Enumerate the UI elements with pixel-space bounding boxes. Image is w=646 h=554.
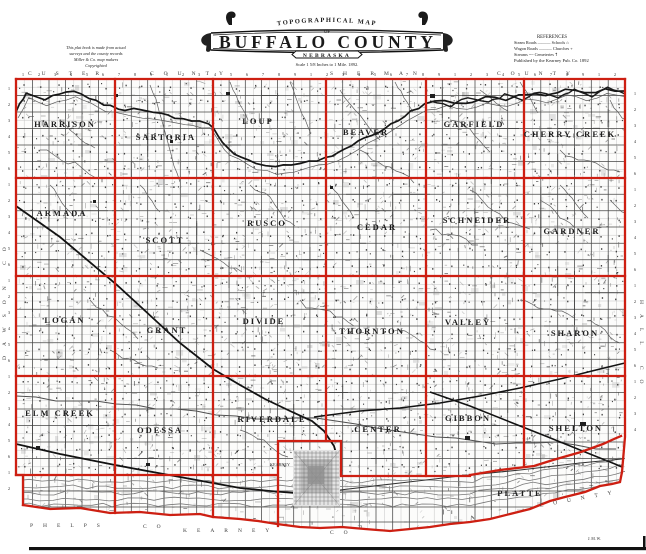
svg-text:RIVERDALE: RIVERDALE xyxy=(237,414,306,424)
svg-text:2: 2 xyxy=(470,72,472,77)
svg-text:1: 1 xyxy=(166,72,168,77)
svg-text:DIVIDE: DIVIDE xyxy=(243,316,286,326)
svg-text:2: 2 xyxy=(38,72,40,77)
svg-text:ELM CREEK: ELM CREEK xyxy=(25,408,95,418)
svg-text:THORNTON: THORNTON xyxy=(339,326,404,336)
svg-text:KEARNEY: KEARNEY xyxy=(270,462,290,467)
svg-text:4: 4 xyxy=(634,235,636,240)
svg-text:Steam Roads ——— Schools ⌂: Steam Roads ——— Schools ⌂ xyxy=(514,40,569,45)
svg-text:4: 4 xyxy=(8,230,10,235)
svg-text:LOGAN: LOGAN xyxy=(44,315,85,325)
svg-text:Copyrighted: Copyrighted xyxy=(85,63,107,68)
svg-text:HARRISON: HARRISON xyxy=(34,119,96,129)
svg-text:1: 1 xyxy=(634,379,636,384)
svg-text:NEBRASKA: NEBRASKA xyxy=(303,53,351,59)
svg-text:1: 1 xyxy=(634,283,636,288)
svg-text:4: 4 xyxy=(502,72,504,77)
svg-text:4: 4 xyxy=(8,422,10,427)
svg-text:CENTER: CENTER xyxy=(354,424,401,434)
svg-text:Wagon Roads ——— Churches +: Wagon Roads ——— Churches + xyxy=(514,46,573,51)
svg-text:5: 5 xyxy=(8,150,10,155)
svg-text:3: 3 xyxy=(198,72,200,77)
svg-text:3: 3 xyxy=(634,219,636,224)
svg-text:4: 4 xyxy=(634,331,636,336)
svg-text:2: 2 xyxy=(182,72,184,77)
svg-text:6: 6 xyxy=(246,72,248,77)
svg-text:3: 3 xyxy=(54,72,56,77)
svg-text:1: 1 xyxy=(8,182,10,187)
svg-text:1: 1 xyxy=(22,72,24,77)
svg-text:Miller & Co. map makers: Miller & Co. map makers xyxy=(73,57,119,62)
svg-text:3: 3 xyxy=(342,72,344,77)
svg-text:Published by the Kearney Pub.: Published by the Kearney Pub. Co. 1892 xyxy=(514,58,589,63)
svg-text:RUSCO: RUSCO xyxy=(247,218,287,228)
svg-text:6: 6 xyxy=(634,363,636,368)
svg-text:1: 1 xyxy=(8,470,10,475)
svg-text:Scale 1 5/8 Inches to 1 Mile.: Scale 1 5/8 Inches to 1 Mile. 1892. xyxy=(296,62,359,67)
svg-text:2: 2 xyxy=(634,299,636,304)
svg-text:KEARNEY: KEARNEY xyxy=(183,528,279,534)
svg-text:6: 6 xyxy=(634,171,636,176)
svg-text:3: 3 xyxy=(8,214,10,219)
svg-text:9: 9 xyxy=(150,72,152,77)
svg-text:5: 5 xyxy=(86,72,88,77)
svg-text:CO: CO xyxy=(330,530,358,536)
svg-text:GIBBON: GIBBON xyxy=(445,413,491,423)
svg-text:9: 9 xyxy=(438,72,440,77)
svg-text:1: 1 xyxy=(598,72,600,77)
svg-text:COUNTY: COUNTY xyxy=(150,71,233,77)
svg-text:1: 1 xyxy=(8,86,10,91)
svg-text:5: 5 xyxy=(634,347,636,352)
svg-text:SHARON: SHARON xyxy=(551,328,599,338)
svg-text:GARDNER: GARDNER xyxy=(544,226,601,236)
svg-text:8: 8 xyxy=(566,72,568,77)
svg-text:9: 9 xyxy=(582,72,584,77)
svg-text:6: 6 xyxy=(8,358,10,363)
svg-text:2: 2 xyxy=(634,107,636,112)
svg-text:2: 2 xyxy=(8,102,10,107)
svg-text:3: 3 xyxy=(8,406,10,411)
svg-text:VALLEY: VALLEY xyxy=(445,317,491,327)
svg-text:6: 6 xyxy=(634,267,636,272)
svg-text:1: 1 xyxy=(310,72,312,77)
svg-text:6: 6 xyxy=(8,262,10,267)
svg-text:3: 3 xyxy=(634,123,636,128)
svg-text:4: 4 xyxy=(70,72,72,77)
svg-text:1: 1 xyxy=(8,374,10,379)
svg-text:SCHNEIDER: SCHNEIDER xyxy=(443,215,512,225)
svg-text:8: 8 xyxy=(278,72,280,77)
svg-text:SCOTT: SCOTT xyxy=(146,235,185,245)
svg-text:6: 6 xyxy=(390,72,392,77)
svg-text:GRANT: GRANT xyxy=(147,325,188,335)
svg-text:9: 9 xyxy=(294,72,296,77)
svg-text:5: 5 xyxy=(8,438,10,443)
svg-text:2: 2 xyxy=(8,294,10,299)
svg-text:4: 4 xyxy=(8,326,10,331)
svg-text:J. M. W.: J. M. W. xyxy=(588,537,601,541)
svg-text:6: 6 xyxy=(534,72,536,77)
svg-text:ARMADA: ARMADA xyxy=(37,208,88,218)
svg-text:2: 2 xyxy=(8,486,10,491)
svg-text:4: 4 xyxy=(634,427,636,432)
svg-text:4: 4 xyxy=(214,72,216,77)
svg-text:3: 3 xyxy=(8,310,10,315)
svg-text:4: 4 xyxy=(634,139,636,144)
svg-text:7: 7 xyxy=(262,72,264,77)
svg-text:Streams ~~ Cemeteries ☨: Streams ~~ Cemeteries ☨ xyxy=(514,52,557,57)
svg-text:5: 5 xyxy=(634,251,636,256)
svg-text:2: 2 xyxy=(634,395,636,400)
svg-text:HALL CO: HALL CO xyxy=(638,300,644,393)
svg-text:5: 5 xyxy=(8,246,10,251)
svg-text:2: 2 xyxy=(634,203,636,208)
svg-text:4: 4 xyxy=(358,72,360,77)
svg-text:BUFFALO COUNTY: BUFFALO COUNTY xyxy=(219,32,435,52)
svg-text:5: 5 xyxy=(634,155,636,160)
svg-text:LOUP: LOUP xyxy=(242,116,274,126)
svg-text:This plat book is made from ac: This plat book is made from actual xyxy=(66,45,127,50)
svg-text:surveys and the county records: surveys and the county records xyxy=(69,51,122,56)
svg-text:1: 1 xyxy=(634,187,636,192)
svg-text:1: 1 xyxy=(8,278,10,283)
svg-text:5: 5 xyxy=(230,72,232,77)
svg-text:7: 7 xyxy=(118,72,120,77)
svg-text:2: 2 xyxy=(614,72,616,77)
svg-text:CO: CO xyxy=(143,524,171,530)
svg-text:7: 7 xyxy=(550,72,552,77)
svg-text:3: 3 xyxy=(634,315,636,320)
svg-text:3: 3 xyxy=(486,72,488,77)
svg-text:SHERMAN: SHERMAN xyxy=(330,71,427,77)
svg-text:8: 8 xyxy=(422,72,424,77)
svg-text:CUSTER: CUSTER xyxy=(28,71,109,77)
svg-text:PLATTE: PLATTE xyxy=(497,488,542,498)
svg-text:1: 1 xyxy=(634,91,636,96)
svg-text:6: 6 xyxy=(8,454,10,459)
svg-text:1: 1 xyxy=(454,72,456,77)
svg-text:3: 3 xyxy=(8,118,10,123)
svg-text:6: 6 xyxy=(102,72,104,77)
svg-text:5: 5 xyxy=(518,72,520,77)
svg-text:7: 7 xyxy=(406,72,408,77)
svg-text:CEDAR: CEDAR xyxy=(357,222,397,232)
svg-text:6: 6 xyxy=(8,166,10,171)
svg-text:2: 2 xyxy=(326,72,328,77)
svg-text:CHERRY CREEK: CHERRY CREEK xyxy=(524,129,617,139)
svg-text:GARFIELD: GARFIELD xyxy=(444,119,505,129)
svg-text:SARTORIA: SARTORIA xyxy=(136,132,196,142)
svg-text:2: 2 xyxy=(8,390,10,395)
svg-text:3: 3 xyxy=(634,411,636,416)
svg-text:BEAVER: BEAVER xyxy=(343,127,389,137)
svg-text:4: 4 xyxy=(8,134,10,139)
svg-text:ODESSA: ODESSA xyxy=(137,425,183,435)
svg-text:5: 5 xyxy=(8,342,10,347)
svg-text:SHELTON: SHELTON xyxy=(549,423,603,433)
svg-text:PHELPS: PHELPS xyxy=(30,523,110,529)
svg-text:8: 8 xyxy=(134,72,136,77)
svg-text:2: 2 xyxy=(8,198,10,203)
svg-text:5: 5 xyxy=(374,72,376,77)
